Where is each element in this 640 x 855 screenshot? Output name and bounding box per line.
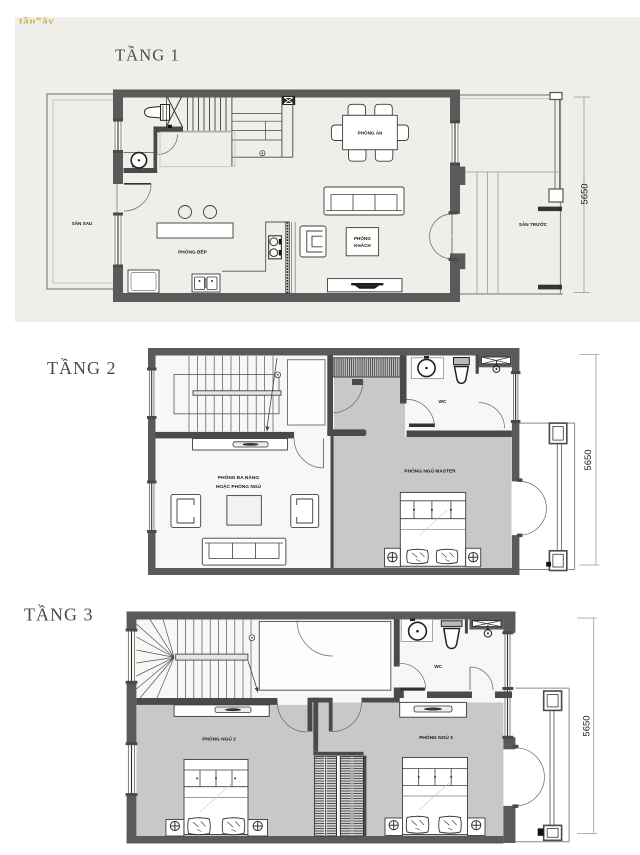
svg-text:SÂN SAU: SÂN SAU — [72, 220, 93, 226]
svg-text:PHÒNG BẾP: PHÒNG BẾP — [178, 248, 208, 256]
svg-text:PHÒNG: PHÒNG — [354, 234, 371, 241]
svg-text:SÂN TRƯỚC: SÂN TRƯỚC — [519, 220, 548, 227]
svg-text:WC: WC — [434, 664, 443, 670]
svg-text:KHÁCH: KHÁCH — [354, 242, 371, 248]
svg-text:TẦNG 2: TẦNG 2 — [47, 357, 117, 378]
svg-text:5650: 5650 — [583, 449, 594, 470]
svg-text:tầu‟äṿ: tầu‟äṿ — [19, 16, 54, 28]
svg-text:TẦNG 1: TẦNG 1 — [115, 46, 180, 65]
svg-text:TẦNG 3: TẦNG 3 — [24, 604, 94, 625]
svg-text:PHÒNG ĂN: PHÒNG ĂN — [358, 128, 383, 135]
svg-text:WC: WC — [439, 399, 448, 405]
svg-text:5650: 5650 — [580, 183, 591, 204]
svg-text:5650: 5650 — [582, 715, 593, 736]
